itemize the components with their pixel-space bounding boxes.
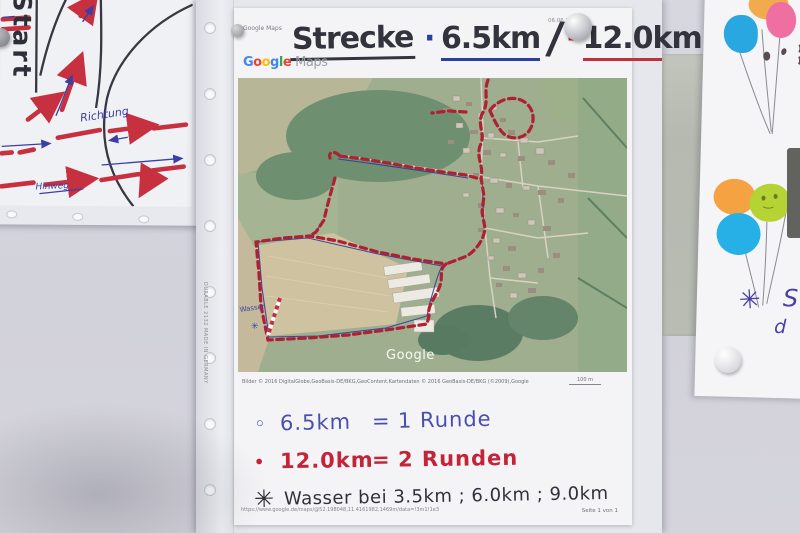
logo-letter: G: [243, 55, 253, 70]
legend-distance: 6.5km: [280, 409, 372, 435]
google-watermark: Google: [386, 348, 435, 363]
balloon-blue-top: [723, 15, 758, 54]
left-sheet-protector: Start Richtung Hinweg: [0, 0, 199, 226]
map-attribution: Bilder © 2016 DigitalGlobe,GeoBasis-DE/B…: [238, 379, 561, 385]
handwritten-legend: ◦ 6.5km = 1 Runde • 12.0km = 2 Runden ✳ …: [254, 400, 614, 514]
smiley-mouth: [761, 200, 775, 209]
page-footer-pagenumber: Seite 1 von 1: [582, 508, 618, 514]
legend-equals: =: [372, 448, 398, 472]
logo-maps-word: Maps: [295, 55, 327, 70]
pushpin-white: [715, 347, 741, 373]
legend-row-two-rounds: • 12.0km = 2 Runden: [254, 437, 614, 480]
title-slash: /: [547, 38, 563, 40]
sketch-roads: [35, 0, 192, 207]
legend-wasser-text: Wasser bei 3.5km ; 6.0km ; 9.0km: [284, 482, 609, 509]
page-print-header: Google Maps: [243, 25, 282, 32]
legend-distance: 12.0km: [280, 448, 372, 473]
left-sketch-paper: Start Richtung Hinweg: [0, 0, 193, 207]
bulletin-board-photo: Start Richtung Hinweg DURABLE 2132 MADE …: [0, 0, 800, 533]
legend-row-one-round: ◦ 6.5km = 1 Runde: [254, 396, 615, 444]
paper-gap-shadow: [787, 148, 800, 238]
drawing-partial-letter: S: [783, 284, 799, 312]
page-footer-url: https://www.google.de/maps/@52.198048,11…: [241, 507, 439, 513]
pushpin-gray: [564, 13, 592, 41]
title-distance-1: 6.5km: [441, 21, 540, 61]
sleeve-brand-text: DURABLE 2132 MADE IN GERMANY: [202, 282, 208, 384]
balloon-drawing-paper: ✳ S d: [694, 0, 800, 399]
satellite-map-image: Wasser ✳ Google: [238, 78, 627, 372]
title-blue-dot: ·: [424, 21, 435, 56]
logo-letter: g: [270, 55, 279, 70]
legend-equals: =: [372, 409, 398, 434]
logo-letter: e: [283, 55, 291, 70]
hinweg-label: Hinweg: [35, 181, 69, 193]
logo-letter: o: [262, 55, 270, 70]
pen-curve-mark: [791, 54, 800, 66]
start-label: Start: [7, 0, 37, 80]
legend-rounds: 2 Runden: [398, 446, 519, 472]
logo-letter: o: [253, 55, 261, 70]
drawing-partial-letter: d: [774, 316, 787, 338]
map-scale-bar: 100 m: [569, 377, 601, 385]
wall-shadow: [0, 403, 270, 533]
drawing-star-icon: ✳: [738, 285, 762, 316]
left-sleeve-punch-holes: [0, 206, 197, 223]
google-maps-logo: GoogleMaps: [243, 55, 327, 70]
pushpin-small-gray: [231, 24, 244, 37]
printed-map-page: Google Maps 06.06.16 Strecke · 6.5km / ·…: [234, 8, 632, 525]
satellite-map: Wasser ✳ Google: [238, 78, 627, 372]
map-wasser-star-icon: ✳: [251, 322, 259, 332]
legend-rounds: 1 Runde: [398, 407, 492, 433]
map-attribution-row: Bilder © 2016 DigitalGlobe,GeoBasis-DE/B…: [238, 377, 627, 385]
pen-curve-mark: [791, 42, 800, 54]
